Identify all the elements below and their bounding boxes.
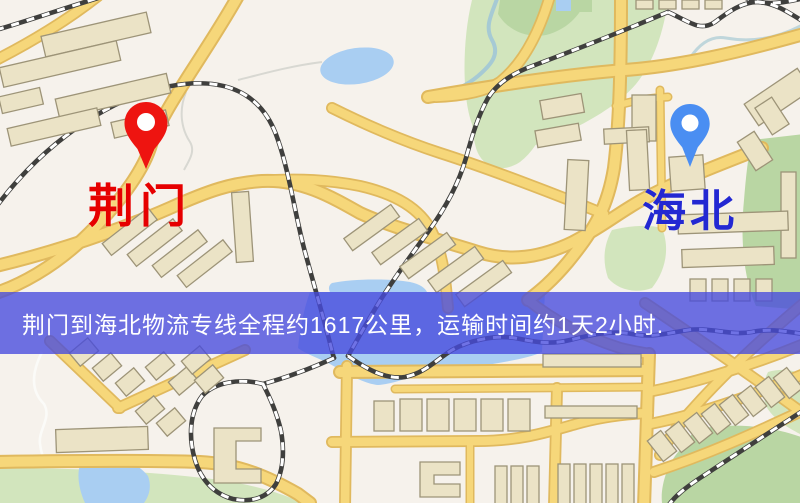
origin-label: 荆门 [88,170,192,236]
origin-pin-icon [122,100,170,172]
map-canvas [0,0,800,503]
destination-label: 海北 [642,175,738,239]
map-screenshot: 荆门 海北 荆门到海北物流专线全程约1617公里，运输时间约1天2小时. [0,0,800,503]
route-info-banner: 荆门到海北物流专线全程约1617公里，运输时间约1天2小时. [0,292,800,354]
destination-pin-icon [668,102,712,170]
route-info-text: 荆门到海北物流专线全程约1617公里，运输时间约1天2小时. [22,306,664,340]
